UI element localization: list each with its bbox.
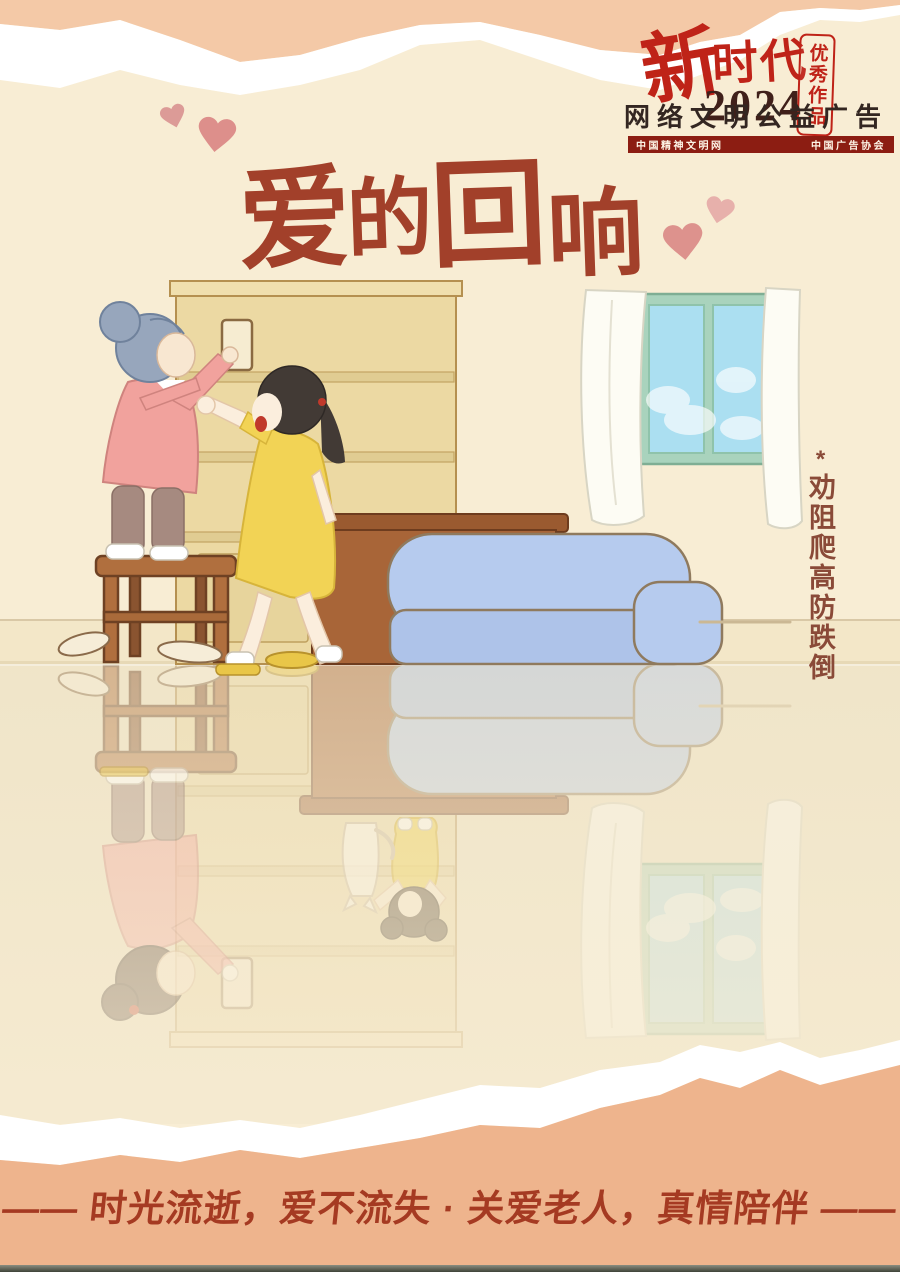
bottom-edge-strip xyxy=(0,1265,900,1272)
poster: 新 时代 2024 优秀作品 网络文明公益广告 中国精神文明网 中国广告协会 爱… xyxy=(0,0,900,1272)
heart-icon xyxy=(701,193,737,228)
slogan: —— 时光流逝，爱不流失 · 关爱老人，真情陪伴 —— xyxy=(0,1178,900,1232)
title-char: 爱 xyxy=(237,157,353,285)
annotation-text: 劝阻爬高防跌倒 xyxy=(805,473,835,683)
org-right: 中国广告协会 xyxy=(811,137,886,152)
logo-block: 新 时代 2024 优秀作品 网络文明公益广告 中国精神文明网 中国广告协会 xyxy=(620,0,900,160)
title-char: 回 xyxy=(428,151,548,283)
title-char: 响 xyxy=(546,180,646,290)
vertical-annotation: *劝阻爬高防跌倒 xyxy=(806,446,833,696)
title-char: 的 xyxy=(345,170,434,269)
annotation-marker: * xyxy=(807,446,834,473)
heart-icon xyxy=(194,114,239,157)
logo-subtitle: 网络文明公益广告 xyxy=(624,104,896,133)
logo-org-banner: 中国精神文明网 中国广告协会 xyxy=(628,136,894,153)
org-left: 中国精神文明网 xyxy=(636,137,724,152)
